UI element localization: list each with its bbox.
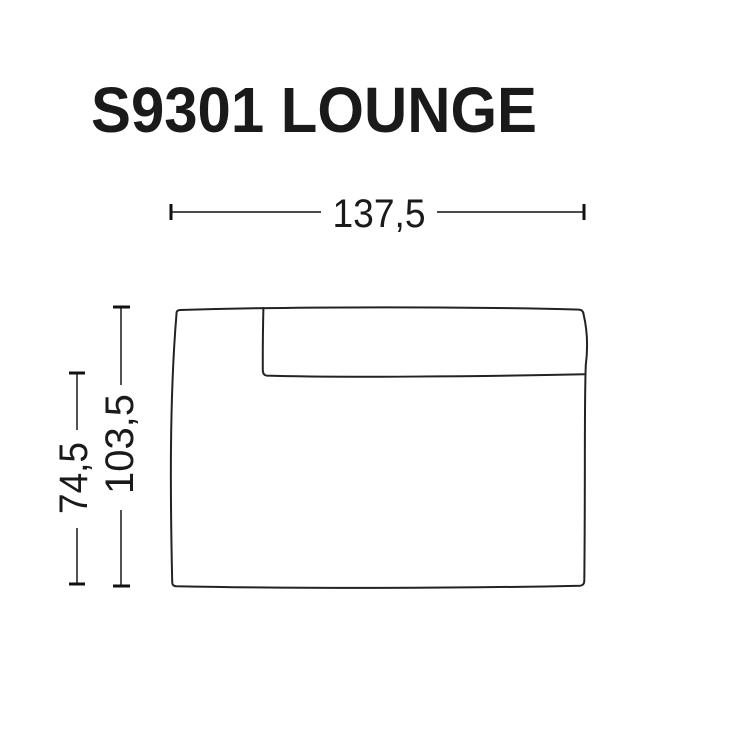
svg-text:74,5: 74,5	[52, 442, 96, 514]
svg-text:137,5: 137,5	[333, 192, 426, 236]
svg-text:S9301 LOUNGE: S9301 LOUNGE	[91, 74, 537, 146]
svg-text:103,5: 103,5	[98, 394, 142, 494]
